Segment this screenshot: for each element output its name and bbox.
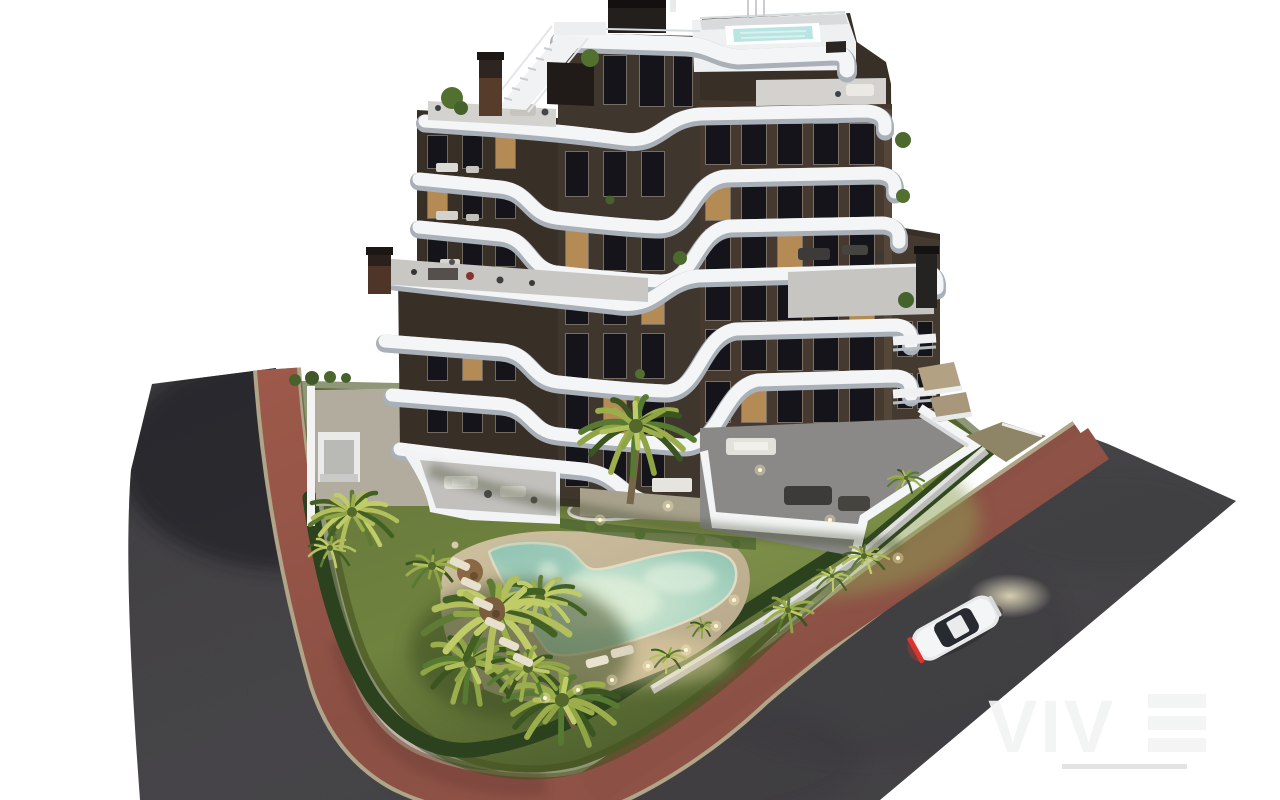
svg-text:VIV: VIV [988, 685, 1116, 768]
